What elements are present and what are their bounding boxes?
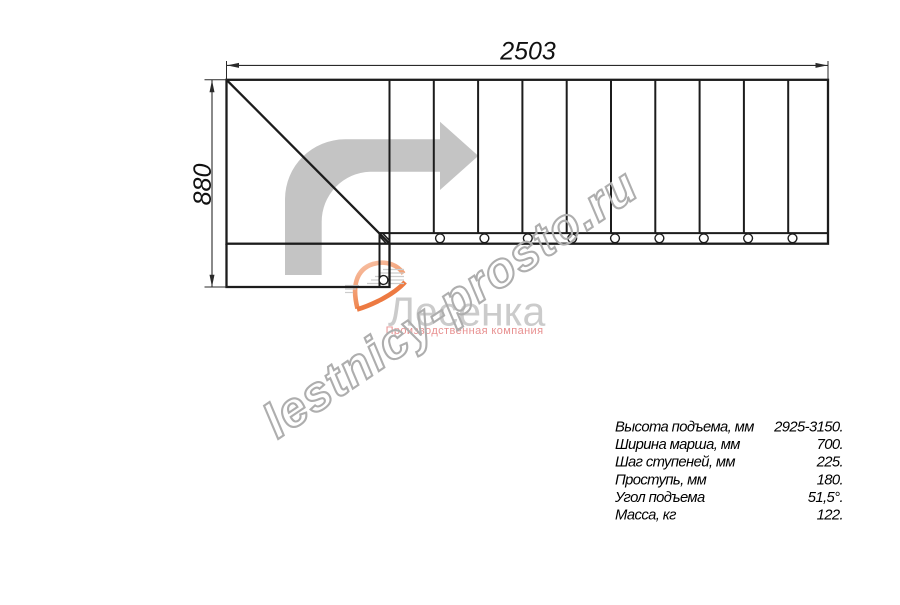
svg-text:Ширина марша, мм: Ширина марша, мм (615, 437, 740, 453)
svg-text:880: 880 (189, 164, 217, 206)
svg-text:Высота подъема, мм: Высота подъема, мм (615, 420, 754, 436)
svg-text:700.: 700. (817, 437, 843, 453)
svg-text:122.: 122. (817, 508, 843, 524)
svg-text:225.: 225. (816, 455, 843, 471)
svg-text:180.: 180. (817, 472, 843, 488)
svg-text:51,5°.: 51,5°. (808, 490, 843, 506)
svg-text:Масса, кг: Масса, кг (615, 508, 676, 524)
svg-text:2503: 2503 (499, 38, 556, 66)
svg-text:Шаг ступеней, мм: Шаг ступеней, мм (615, 455, 735, 471)
svg-text:Угол подъема: Угол подъема (614, 490, 705, 506)
svg-text:Проступь, мм: Проступь, мм (615, 472, 707, 488)
svg-text:2925-3150.: 2925-3150. (773, 420, 843, 436)
